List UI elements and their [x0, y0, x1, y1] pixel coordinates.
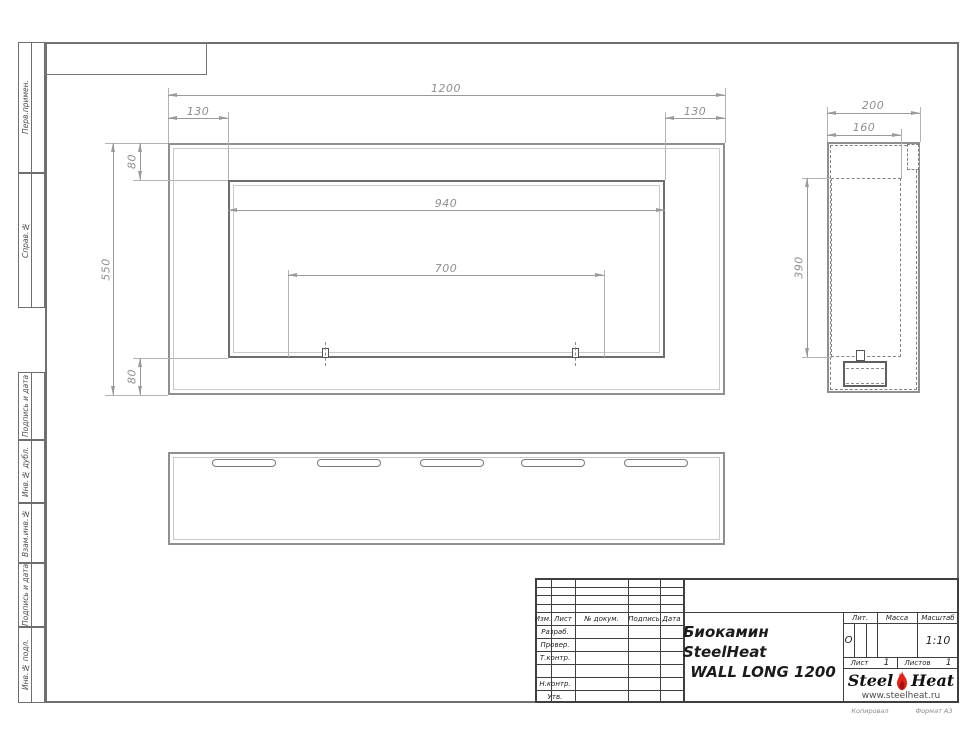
top-left-stamp-box	[45, 42, 207, 75]
side-view-cavity-dashed	[831, 178, 901, 357]
tb-scale-value: 1:10	[917, 623, 959, 657]
tb-line	[575, 578, 576, 703]
dim-text-200: 200	[843, 99, 903, 112]
dim-text-550: 550	[100, 250, 113, 290]
dim-line-1200	[168, 95, 725, 96]
strip-section-inv-dubl: Инв.№ дубл.	[18, 440, 45, 503]
dim-text-130-left: 130	[168, 105, 228, 118]
tb-line	[535, 604, 683, 605]
tb-line	[535, 587, 683, 588]
side-view-bracket-dashed	[907, 144, 919, 170]
bottom-view-fold-line	[173, 457, 720, 540]
tb-sheets-value: 1	[946, 658, 952, 668]
tb-scale-label: Масштаб	[917, 612, 959, 623]
dim-line-130-left	[168, 118, 228, 119]
vent-slot-4	[521, 459, 585, 467]
tb-line	[854, 623, 855, 657]
strip-section-perv-primen: Перв.примен.	[18, 42, 45, 173]
centerline	[575, 342, 576, 366]
dim-text-80-top: 80	[126, 142, 139, 182]
strip-label: Подпись и дата	[19, 564, 32, 626]
flame-icon	[894, 671, 910, 691]
logo-url: www.steelheat.ru	[862, 691, 940, 701]
dim-line-390	[807, 178, 808, 357]
tb-mass-label: Масса	[877, 612, 917, 623]
dim-line-130-right	[665, 118, 725, 119]
tb-line	[660, 578, 661, 703]
strip-section-vzam-inv: Взам.инв.№	[18, 503, 45, 563]
logo-text-heat: Heat	[911, 671, 954, 690]
dim-line-80-top	[140, 143, 141, 180]
tb-sheet-value: 1	[884, 658, 890, 668]
strip-label: Подпись и дата	[19, 373, 32, 439]
burner-dashed-top	[846, 368, 884, 369]
dim-text-940: 940	[406, 197, 486, 210]
extension-line	[228, 112, 229, 180]
tb-sheets-cell: Листов 1	[897, 657, 959, 668]
document-title-line1: Биокамин SteelHeat	[683, 622, 843, 662]
strip-label: Инв.№ дубл.	[19, 441, 32, 502]
dim-line-700	[288, 275, 604, 276]
dim-line-160	[827, 135, 901, 136]
dim-text-130-right: 130	[665, 105, 725, 118]
strip-label: Взам.инв.№	[19, 504, 32, 562]
tb-header-list: Лист	[551, 612, 575, 625]
extension-line	[288, 270, 289, 357]
tb-header-izm: Изм.	[535, 612, 551, 625]
tb-role-tcontrol: Т.контр.	[535, 651, 575, 664]
vent-slot-1	[212, 459, 276, 467]
drawing-sheet: Перв.примен. Справ.№ Подпись и дата Инв.…	[0, 0, 970, 749]
dim-text-390: 390	[793, 248, 806, 288]
dim-text-160: 160	[834, 121, 894, 134]
tb-header-doc: № докум.	[575, 612, 628, 625]
tb-line	[535, 664, 683, 665]
extension-line	[665, 112, 666, 180]
extension-line	[604, 270, 605, 357]
vent-slot-3	[420, 459, 484, 467]
extension-line	[920, 107, 921, 142]
vent-slot-2	[317, 459, 381, 467]
tb-lit-value: О	[843, 623, 854, 657]
centerline	[325, 342, 326, 366]
tb-role-ncontrol: Н.контр.	[535, 677, 575, 690]
tb-role-approved: Утв.	[535, 690, 575, 703]
tb-sheets-label: Листов	[905, 659, 931, 667]
document-title-line2: WALL LONG 1200	[690, 662, 836, 682]
tb-header-sign: Подпись	[628, 612, 660, 625]
format-label: Формат А3	[906, 706, 962, 715]
tb-role-checked: Провер.	[535, 638, 575, 651]
strip-section-podpis-data-2: Подпись и дата	[18, 563, 45, 627]
strip-label: Перв.примен.	[19, 43, 32, 172]
extension-line	[725, 88, 726, 143]
extension-line	[802, 357, 832, 358]
tb-lit-label: Лит.	[843, 612, 877, 623]
dim-text-1200: 1200	[406, 82, 486, 95]
tb-sheet-cell: Лист 1	[843, 657, 897, 668]
dim-line-940	[228, 210, 665, 211]
extension-line	[133, 358, 228, 359]
burner-dashed-bottom	[846, 383, 884, 384]
extension-line	[133, 180, 228, 181]
extension-line	[901, 129, 902, 179]
vent-slot-5	[624, 459, 688, 467]
dim-line-550	[113, 143, 114, 395]
dim-line-200	[827, 113, 920, 114]
tb-line	[866, 623, 867, 657]
tb-line	[535, 595, 683, 596]
tb-sheet-label: Лист	[851, 659, 869, 667]
document-title: Биокамин SteelHeat WALL LONG 1200	[683, 612, 843, 703]
strip-section-inv-podl: Инв.№ подл.	[18, 627, 45, 703]
copied-label: Копировал	[838, 706, 902, 715]
strip-label: Справ.№	[19, 174, 32, 307]
strip-label: Инв.№ подл.	[19, 628, 32, 702]
side-view-tab	[856, 350, 865, 361]
strip-section-sprav-no: Справ.№	[18, 173, 45, 308]
tb-line	[628, 578, 629, 703]
tb-role-developed: Разраб.	[535, 625, 575, 638]
strip-section-podpis-data-1: Подпись и дата	[18, 372, 45, 440]
dim-text-700: 700	[406, 262, 486, 275]
dim-line-80-bottom	[140, 358, 141, 395]
logo-text-steel: Steel	[848, 671, 893, 690]
dim-text-80-bottom: 80	[126, 357, 139, 397]
tb-header-date: Дата	[660, 612, 683, 625]
company-logo: Steel Heat www.steelheat.ru	[843, 668, 959, 703]
